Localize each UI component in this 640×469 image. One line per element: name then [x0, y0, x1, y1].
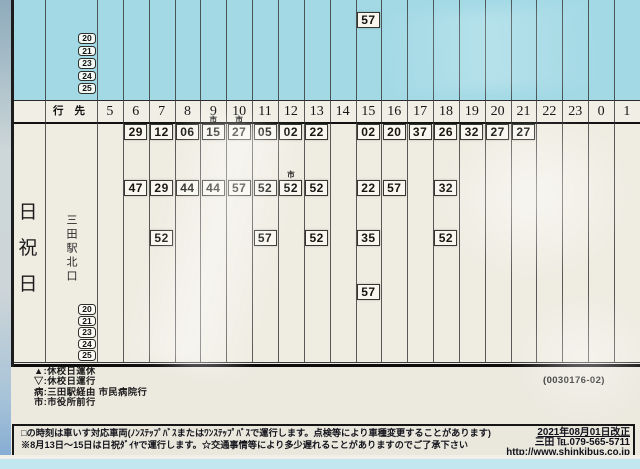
departure-time-19-32: 32 [460, 124, 483, 140]
hour-header-5: 5 [97, 102, 123, 121]
legend-item: ▲:休校日運休 [34, 366, 147, 376]
time-note-mark: 市 [202, 116, 225, 124]
hour-header-20: 20 [485, 102, 511, 121]
departure-time-16-20: 20 [383, 124, 406, 140]
photo-left-edge [0, 0, 11, 469]
departure-time-7-12: 12 [150, 124, 173, 140]
day-label-char: 日 [11, 197, 45, 224]
legend: ▲:休校日運休 ▽:休校日運行 病:三田駅経由 市民病院行 市:市役所前行 [34, 366, 147, 408]
departure-time-17-37: 37 [409, 124, 432, 140]
hour-header-21: 21 [511, 102, 537, 121]
departure-time-12-52: 52 [279, 180, 302, 196]
departure-time-11-52: 52 [254, 180, 277, 196]
departure-time-11-57: 57 [254, 230, 277, 246]
departure-time-18-52: 52 [434, 230, 457, 246]
timetable-grid: 行 先 日 祝 日 三田駅北口 567891011121314151617181… [11, 0, 640, 367]
departure-time-10-27: 27 [228, 124, 251, 140]
hour-header-16: 16 [381, 102, 407, 121]
hour-header-15: 15 [356, 102, 382, 121]
route-number-25: 25 [78, 350, 96, 361]
departure-time-13-52: 52 [305, 180, 328, 196]
column-line [485, 0, 486, 362]
hour-header-14: 14 [330, 102, 356, 121]
departure-time-7-29: 29 [150, 180, 173, 196]
footer-note-line: □の時刻は車いす対応車両(ﾉﾝｽﾃｯﾌﾟﾊﾞｽまたはﾜﾝｽﾃｯﾌﾟﾊﾞｽで運行し… [21, 428, 499, 440]
legend-item: 病:三田駅経由 市民病院行 [34, 387, 147, 397]
hour-header-12: 12 [278, 102, 304, 121]
column-line [97, 0, 98, 362]
column-line [536, 0, 537, 362]
hour-header-0: 0 [588, 102, 614, 121]
column-line [459, 0, 460, 362]
departure-time-20-27: 27 [486, 124, 509, 140]
footer-note-box: □の時刻は車いす対応車両(ﾉﾝｽﾃｯﾌﾟﾊﾞｽまたはﾜﾝｽﾃｯﾌﾟﾊﾞｽで運行し… [12, 424, 635, 457]
legend-item: ▽:休校日運行 [34, 376, 147, 386]
time-note-mark: 市 [228, 116, 251, 124]
stop-name-label: 三田駅北口 [63, 214, 79, 306]
legend-item: 市:市役所前行 [34, 397, 147, 407]
departure-time-6-47: 47 [124, 180, 147, 196]
column-line [45, 0, 46, 362]
column-line [614, 0, 615, 362]
footer-note-line: ※8月13日～15日は日祝ﾀﾞｲﾔで運行します。☆交通事情等により多少遅れること… [21, 440, 499, 452]
serial-number: (0030176-02) [543, 375, 605, 386]
hour-header-1: 1 [614, 102, 640, 121]
hour-header-17: 17 [407, 102, 433, 121]
footer-notes: □の時刻は車いす対応車両(ﾉﾝｽﾃｯﾌﾟﾊﾞｽまたはﾜﾝｽﾃｯﾌﾟﾊﾞｽで運行し… [21, 428, 499, 451]
day-label-char: 日 [11, 269, 45, 296]
bottom-cyan-strip [0, 459, 640, 469]
departure-time-9-44: 44 [202, 180, 225, 196]
departure-time-12-02: 02 [279, 124, 302, 140]
departure-time-13-22: 22 [305, 124, 328, 140]
route-number-24: 24 [78, 339, 96, 350]
column-line [562, 0, 563, 362]
departure-time-15-02: 02 [357, 124, 380, 140]
table-left-frame [11, 0, 14, 367]
hour-header-22: 22 [536, 102, 562, 121]
day-label-char: 祝 [11, 233, 45, 260]
column-line [588, 0, 589, 362]
departure-time-15-22: 22 [357, 180, 380, 196]
column-line [407, 0, 408, 362]
departure-time-18-26: 26 [434, 124, 457, 140]
departure-time-7-52: 52 [150, 230, 173, 246]
time-note-mark: 市 [279, 171, 302, 179]
departure-time-15-35: 35 [357, 230, 380, 246]
hour-header-23: 23 [562, 102, 588, 121]
route-number-20: 20 [78, 304, 96, 315]
departure-time-18-32: 32 [434, 180, 457, 196]
route-number-21: 21 [78, 316, 96, 327]
route-number-25: 25 [78, 83, 96, 94]
footer-contact-block: 2021年08月01日改正 三田 ℡.079-565-5711 http://w… [470, 426, 630, 457]
hour-header-6: 6 [123, 102, 149, 121]
departure-time-6-29: 29 [124, 124, 147, 140]
departure-time-9-15: 15 [202, 124, 225, 140]
hour-header-11: 11 [252, 102, 278, 121]
destination-column-header: 行 先 [45, 102, 97, 121]
table-bottom-thin-line [11, 362, 640, 363]
timetable-sign-photo: 行 先 日 祝 日 三田駅北口 567891011121314151617181… [0, 0, 640, 469]
hour-header-7: 7 [149, 102, 175, 121]
route-number-24: 24 [78, 71, 96, 82]
departure-time-16-57: 57 [383, 180, 406, 196]
departure-time-10-57: 57 [228, 180, 251, 196]
departure-time-11-05: 05 [254, 124, 277, 140]
hour-header-19: 19 [459, 102, 485, 121]
hour-header-18: 18 [433, 102, 459, 121]
departure-time-21-27: 27 [512, 124, 535, 140]
hour-header-8: 8 [175, 102, 201, 121]
departure-time-15-57: 57 [357, 12, 380, 28]
route-number-20: 20 [78, 33, 96, 44]
departure-time-8-06: 06 [176, 124, 199, 140]
route-number-23: 23 [78, 58, 96, 69]
column-line [330, 0, 331, 362]
departure-time-15-57: 57 [357, 284, 380, 300]
departure-time-8-44: 44 [176, 180, 199, 196]
departure-time-13-52: 52 [305, 230, 328, 246]
hour-header-13: 13 [304, 102, 330, 121]
saturday-section-cut [14, 0, 640, 100]
column-line [511, 0, 512, 362]
route-number-21: 21 [78, 46, 96, 57]
route-number-23: 23 [78, 327, 96, 338]
